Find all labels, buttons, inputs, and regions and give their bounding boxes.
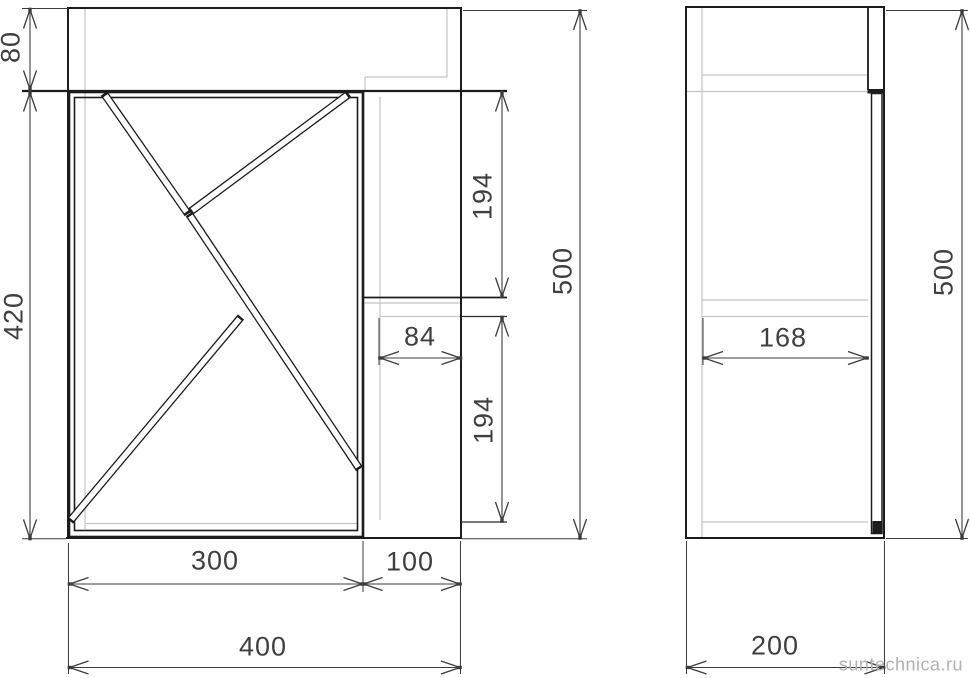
dim-label-side-total-height: 500 <box>931 248 958 296</box>
dim-label-side-width: 100 <box>386 549 434 576</box>
dim-label-total-width: 400 <box>239 634 287 661</box>
brace-top-right <box>190 94 349 212</box>
dim-label-upper-gap: 194 <box>470 172 497 220</box>
dim-label-total-depth: 200 <box>751 633 799 660</box>
dim-label-top-height: 80 <box>0 31 25 63</box>
front-door-braces <box>70 94 360 522</box>
side-extension-lines <box>687 11 969 675</box>
side-construction-lines <box>687 8 868 537</box>
dim-label-front-total-height: 500 <box>550 247 577 295</box>
watermark-text: suntechnica.ru <box>839 655 963 676</box>
side-dimension-lines <box>688 11 963 668</box>
front-view <box>22 8 587 674</box>
front-construction-lines <box>85 9 461 529</box>
technical-drawing-canvas <box>0 0 970 678</box>
side-cabinet-outline <box>686 7 884 538</box>
drawing-page: 80 420 500 194 84 194 300 100 400 168 50… <box>0 0 970 678</box>
side-view <box>686 7 968 674</box>
front-cabinet-outline <box>68 8 461 539</box>
dim-label-door-width: 300 <box>191 548 239 575</box>
dim-label-shelf-depth: 84 <box>404 324 436 351</box>
brace-top-left <box>104 94 188 215</box>
brace-bottom-left <box>70 317 241 521</box>
brace-middle <box>189 214 360 469</box>
dim-label-inner-width: 168 <box>759 325 807 352</box>
dim-label-lower-gap: 194 <box>471 396 498 444</box>
side-door-edge <box>868 8 885 534</box>
dim-label-door-height: 420 <box>1 292 28 340</box>
